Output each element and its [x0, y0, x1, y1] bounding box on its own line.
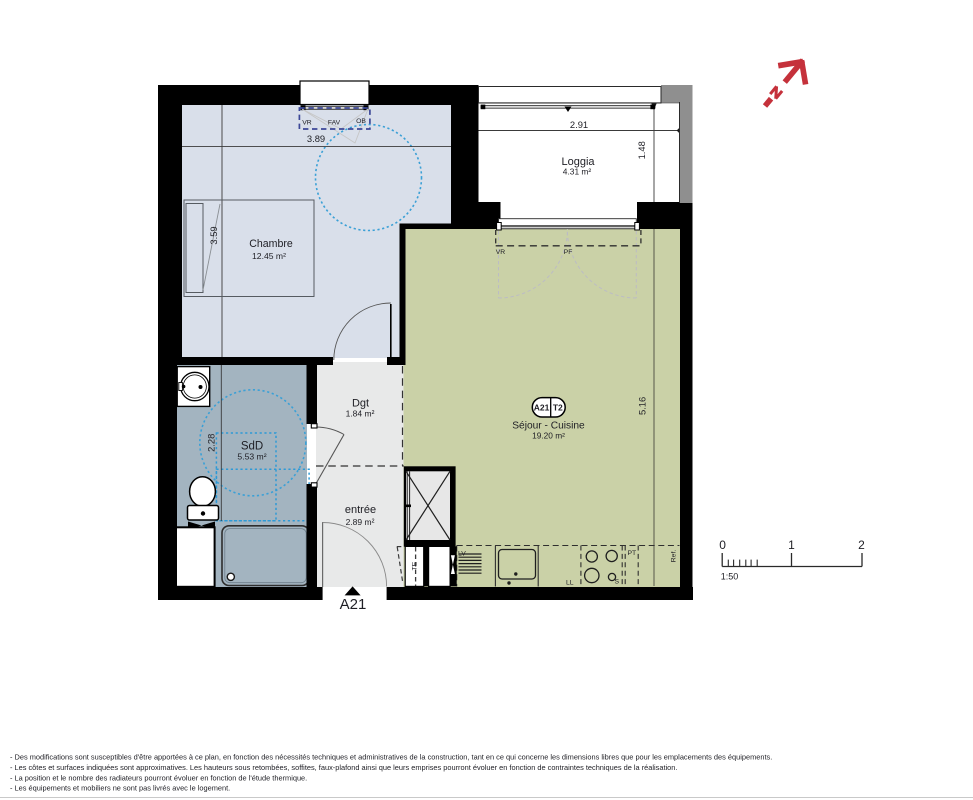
svg-text:S: S	[615, 579, 620, 586]
svg-text:A21: A21	[340, 596, 367, 613]
svg-text:A21: A21	[534, 403, 550, 413]
svg-text:19.20 m²: 19.20 m²	[532, 431, 565, 441]
svg-text:PT: PT	[628, 550, 637, 557]
svg-text:VR: VR	[302, 120, 312, 127]
svg-text:4.31 m²: 4.31 m²	[563, 166, 592, 176]
svg-text:PF: PF	[564, 249, 573, 256]
svg-text:- Des modifications sont susce: - Des modifications sont susceptibles d'…	[10, 752, 772, 761]
svg-text:OB: OB	[356, 118, 366, 125]
svg-text:LV: LV	[458, 551, 466, 558]
svg-text:3.59: 3.59	[208, 226, 219, 244]
svg-text:- Les côtes et surfaces indiqu: - Les côtes et surfaces indiquées sont a…	[10, 763, 677, 772]
svg-text:- La position et le nombre des: - La position et le nombre des radiateur…	[10, 773, 307, 782]
svg-text:5.53 m²: 5.53 m²	[237, 452, 266, 462]
svg-text:1:50: 1:50	[721, 572, 739, 582]
svg-text:3.89: 3.89	[307, 133, 325, 144]
svg-text:Ref.: Ref.	[671, 550, 678, 563]
svg-text:12.45 m²: 12.45 m²	[252, 251, 286, 261]
svg-text:2.28: 2.28	[206, 434, 217, 452]
svg-text:LL: LL	[566, 580, 574, 587]
svg-text:0: 0	[719, 538, 726, 552]
svg-text:Chambre: Chambre	[249, 238, 293, 250]
svg-text:5.16: 5.16	[636, 397, 647, 415]
svg-text:2: 2	[858, 538, 865, 552]
svg-text:FAV: FAV	[328, 120, 341, 127]
svg-text:T2: T2	[553, 403, 563, 413]
svg-text:- Les équipements et mobiliers: - Les équipements et mobiliers ne sont p…	[10, 784, 230, 793]
svg-text:VR: VR	[496, 249, 506, 256]
svg-text:2.89 m²: 2.89 m²	[346, 517, 375, 527]
svg-text:entrée: entrée	[345, 504, 376, 516]
svg-text:1.84 m²: 1.84 m²	[346, 409, 375, 419]
svg-text:2.91: 2.91	[570, 119, 588, 130]
svg-text:1.48: 1.48	[636, 141, 647, 159]
svg-text:1: 1	[788, 538, 795, 552]
svg-text:TE: TE	[412, 561, 419, 570]
